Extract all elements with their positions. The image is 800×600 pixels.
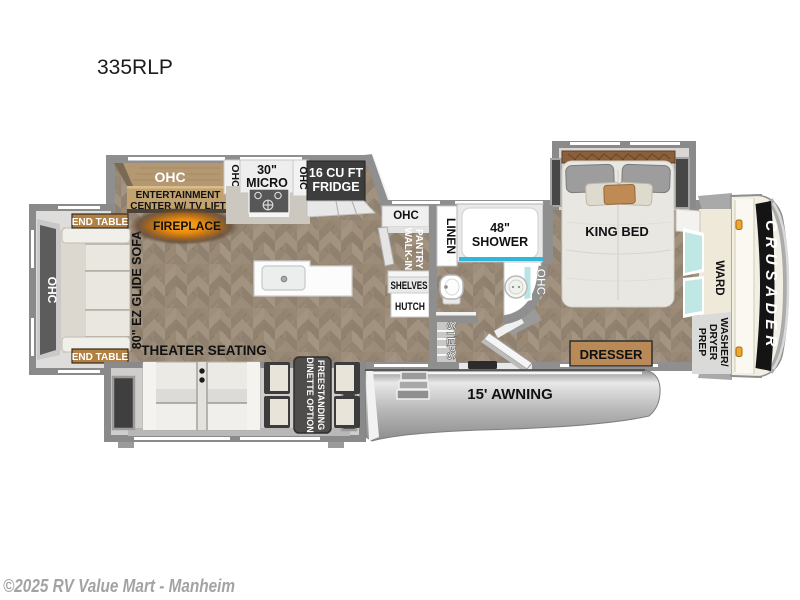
svg-text:15' AWNING: 15' AWNING bbox=[467, 386, 553, 403]
svg-text:OHC: OHC bbox=[154, 169, 185, 185]
svg-text:SHOWER: SHOWER bbox=[472, 235, 528, 249]
svg-text:KING BED: KING BED bbox=[585, 224, 649, 239]
svg-text:WARD: WARD bbox=[713, 260, 725, 295]
svg-text:OHC: OHC bbox=[534, 269, 548, 296]
svg-text:ENTERTAINMENT: ENTERTAINMENT bbox=[136, 190, 221, 201]
svg-text:16 CU FT: 16 CU FT bbox=[309, 166, 364, 180]
svg-text:PANTRY: PANTRY bbox=[413, 229, 424, 269]
svg-text:SHELVES: SHELVES bbox=[391, 280, 428, 292]
svg-text:30": 30" bbox=[257, 163, 277, 177]
svg-text:80" EZ GLIDE SOFA: 80" EZ GLIDE SOFA bbox=[130, 231, 144, 349]
svg-text:FRIDGE: FRIDGE bbox=[312, 180, 359, 194]
svg-text:OHC: OHC bbox=[393, 210, 419, 222]
svg-text:CRUSADER: CRUSADER bbox=[762, 220, 779, 352]
svg-text:LINEN: LINEN bbox=[444, 218, 458, 254]
svg-text:END TABLE: END TABLE bbox=[72, 217, 129, 228]
svg-text:DRESSER: DRESSER bbox=[580, 347, 643, 362]
svg-text:FREESTANDINGDINETTE OPTION: FREESTANDINGDINETTE OPTION bbox=[305, 357, 326, 433]
svg-text:WALK-IN: WALK-IN bbox=[402, 228, 413, 271]
svg-text:OHC: OHC bbox=[45, 277, 59, 304]
svg-text:48": 48" bbox=[490, 221, 510, 235]
svg-text:335RLP: 335RLP bbox=[97, 56, 173, 79]
svg-text:STEPS: STEPS bbox=[444, 322, 456, 360]
svg-text:OHC: OHC bbox=[229, 164, 241, 188]
svg-text:FIREPLACE: FIREPLACE bbox=[153, 219, 221, 233]
svg-text:END TABLE: END TABLE bbox=[72, 352, 129, 363]
svg-text:THEATER SEATING: THEATER SEATING bbox=[141, 343, 267, 358]
svg-text:HUTCH: HUTCH bbox=[395, 301, 425, 313]
svg-text:©2025 RV Value Mart - Manheim: ©2025 RV Value Mart - Manheim bbox=[3, 576, 235, 596]
svg-text:MICRO: MICRO bbox=[246, 176, 288, 190]
